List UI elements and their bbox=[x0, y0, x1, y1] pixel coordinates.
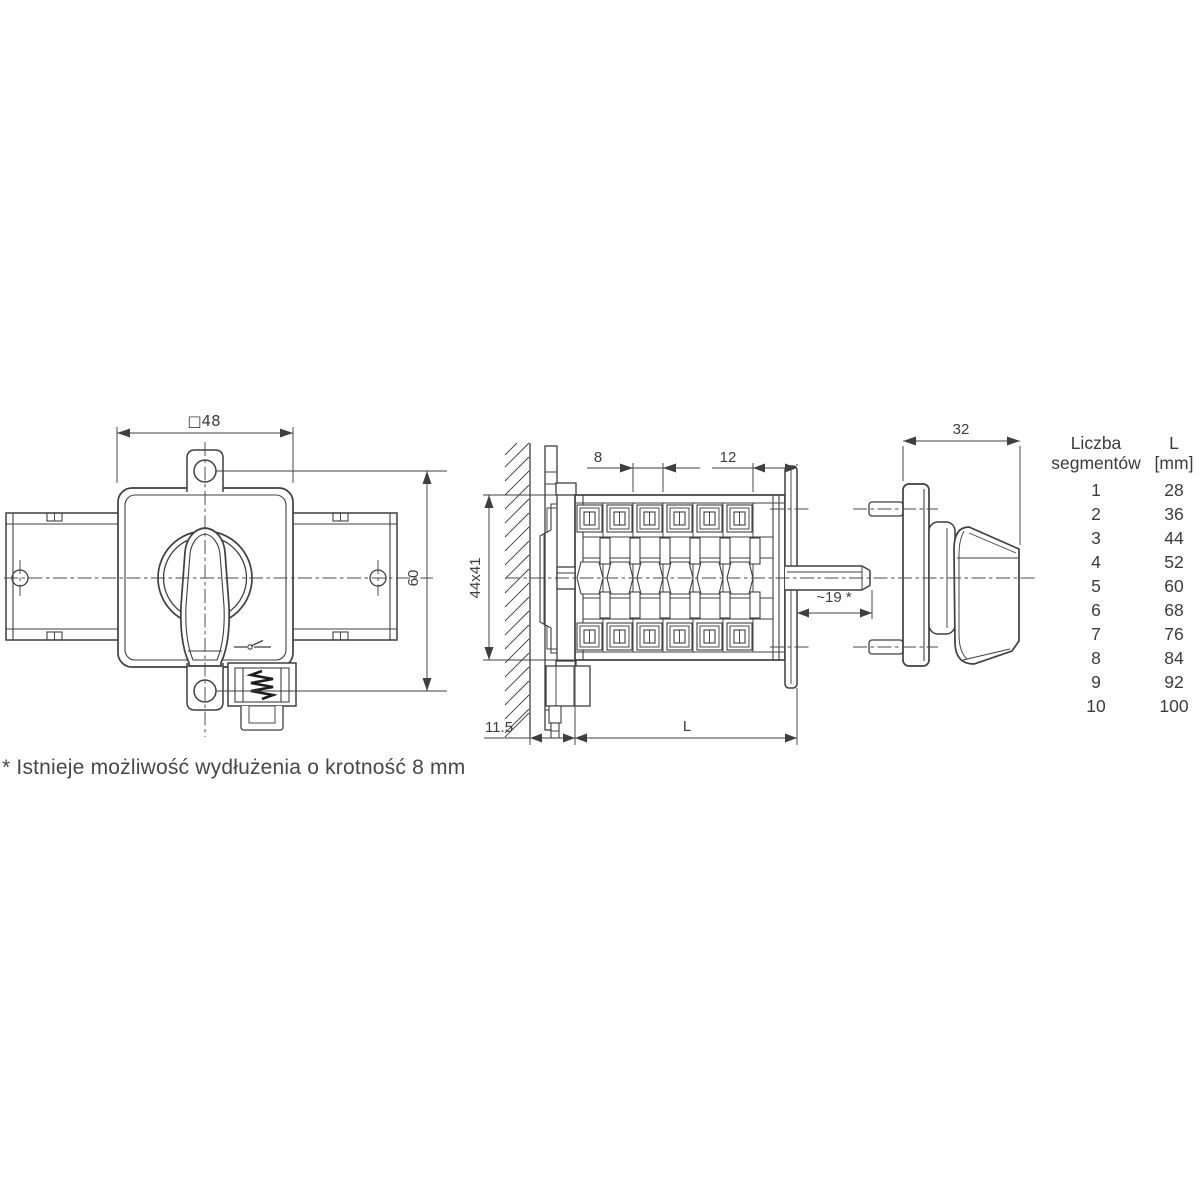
panel-wall bbox=[505, 443, 530, 737]
dim-front-width-label: □48 bbox=[187, 412, 220, 430]
side-view bbox=[505, 443, 870, 738]
handle-view bbox=[869, 484, 1019, 666]
dim-cross-section-label: 44x41 bbox=[467, 558, 484, 599]
table-row: 560 bbox=[1046, 574, 1200, 598]
table-row: 344 bbox=[1046, 526, 1200, 550]
knob-grip bbox=[954, 527, 1019, 664]
din-clip bbox=[228, 663, 296, 730]
dim-handle-depth-label: 32 bbox=[953, 421, 970, 438]
dim-end-segment-label: 12 bbox=[720, 449, 737, 466]
flange-plate bbox=[903, 484, 929, 666]
table-row: 884 bbox=[1046, 646, 1200, 670]
segments-table-header: Liczba segmentów L [mm] bbox=[1046, 433, 1200, 473]
dim-front-height-label: 60 bbox=[405, 570, 422, 587]
technical-drawing: □48 60 8 12 44x41 11.5 L ~19 * 32 bbox=[0, 0, 1200, 1200]
table-row: 236 bbox=[1046, 502, 1200, 526]
table-row: 992 bbox=[1046, 670, 1200, 694]
dim-shaft-length-label: ~19 * bbox=[816, 589, 852, 606]
segments-table-header-col2: L [mm] bbox=[1146, 433, 1200, 473]
segments-table-header-col1: Liczba segmentów bbox=[1046, 433, 1146, 473]
table-row: 128 bbox=[1046, 478, 1200, 502]
dim-segment-pitch-label: 8 bbox=[594, 449, 602, 466]
table-row: 10100 bbox=[1046, 694, 1200, 718]
technical-drawing-page: □48 60 8 12 44x41 11.5 L ~19 * 32 bbox=[0, 0, 1200, 1200]
clip-housing-side bbox=[546, 666, 590, 738]
table-row: 668 bbox=[1046, 598, 1200, 622]
dim-panel-offset-label: 11.5 bbox=[485, 719, 513, 736]
ear-flange-top bbox=[556, 483, 576, 495]
footnote: * Istnieje możliwość wydłużenia o krotno… bbox=[2, 756, 465, 780]
front-view bbox=[6, 450, 397, 730]
table-row: 452 bbox=[1046, 550, 1200, 574]
dim-length-label: L bbox=[683, 718, 691, 735]
table-row: 776 bbox=[1046, 622, 1200, 646]
segments-table: Liczba segmentów L [mm] 128 236 344 452 … bbox=[1046, 433, 1200, 718]
